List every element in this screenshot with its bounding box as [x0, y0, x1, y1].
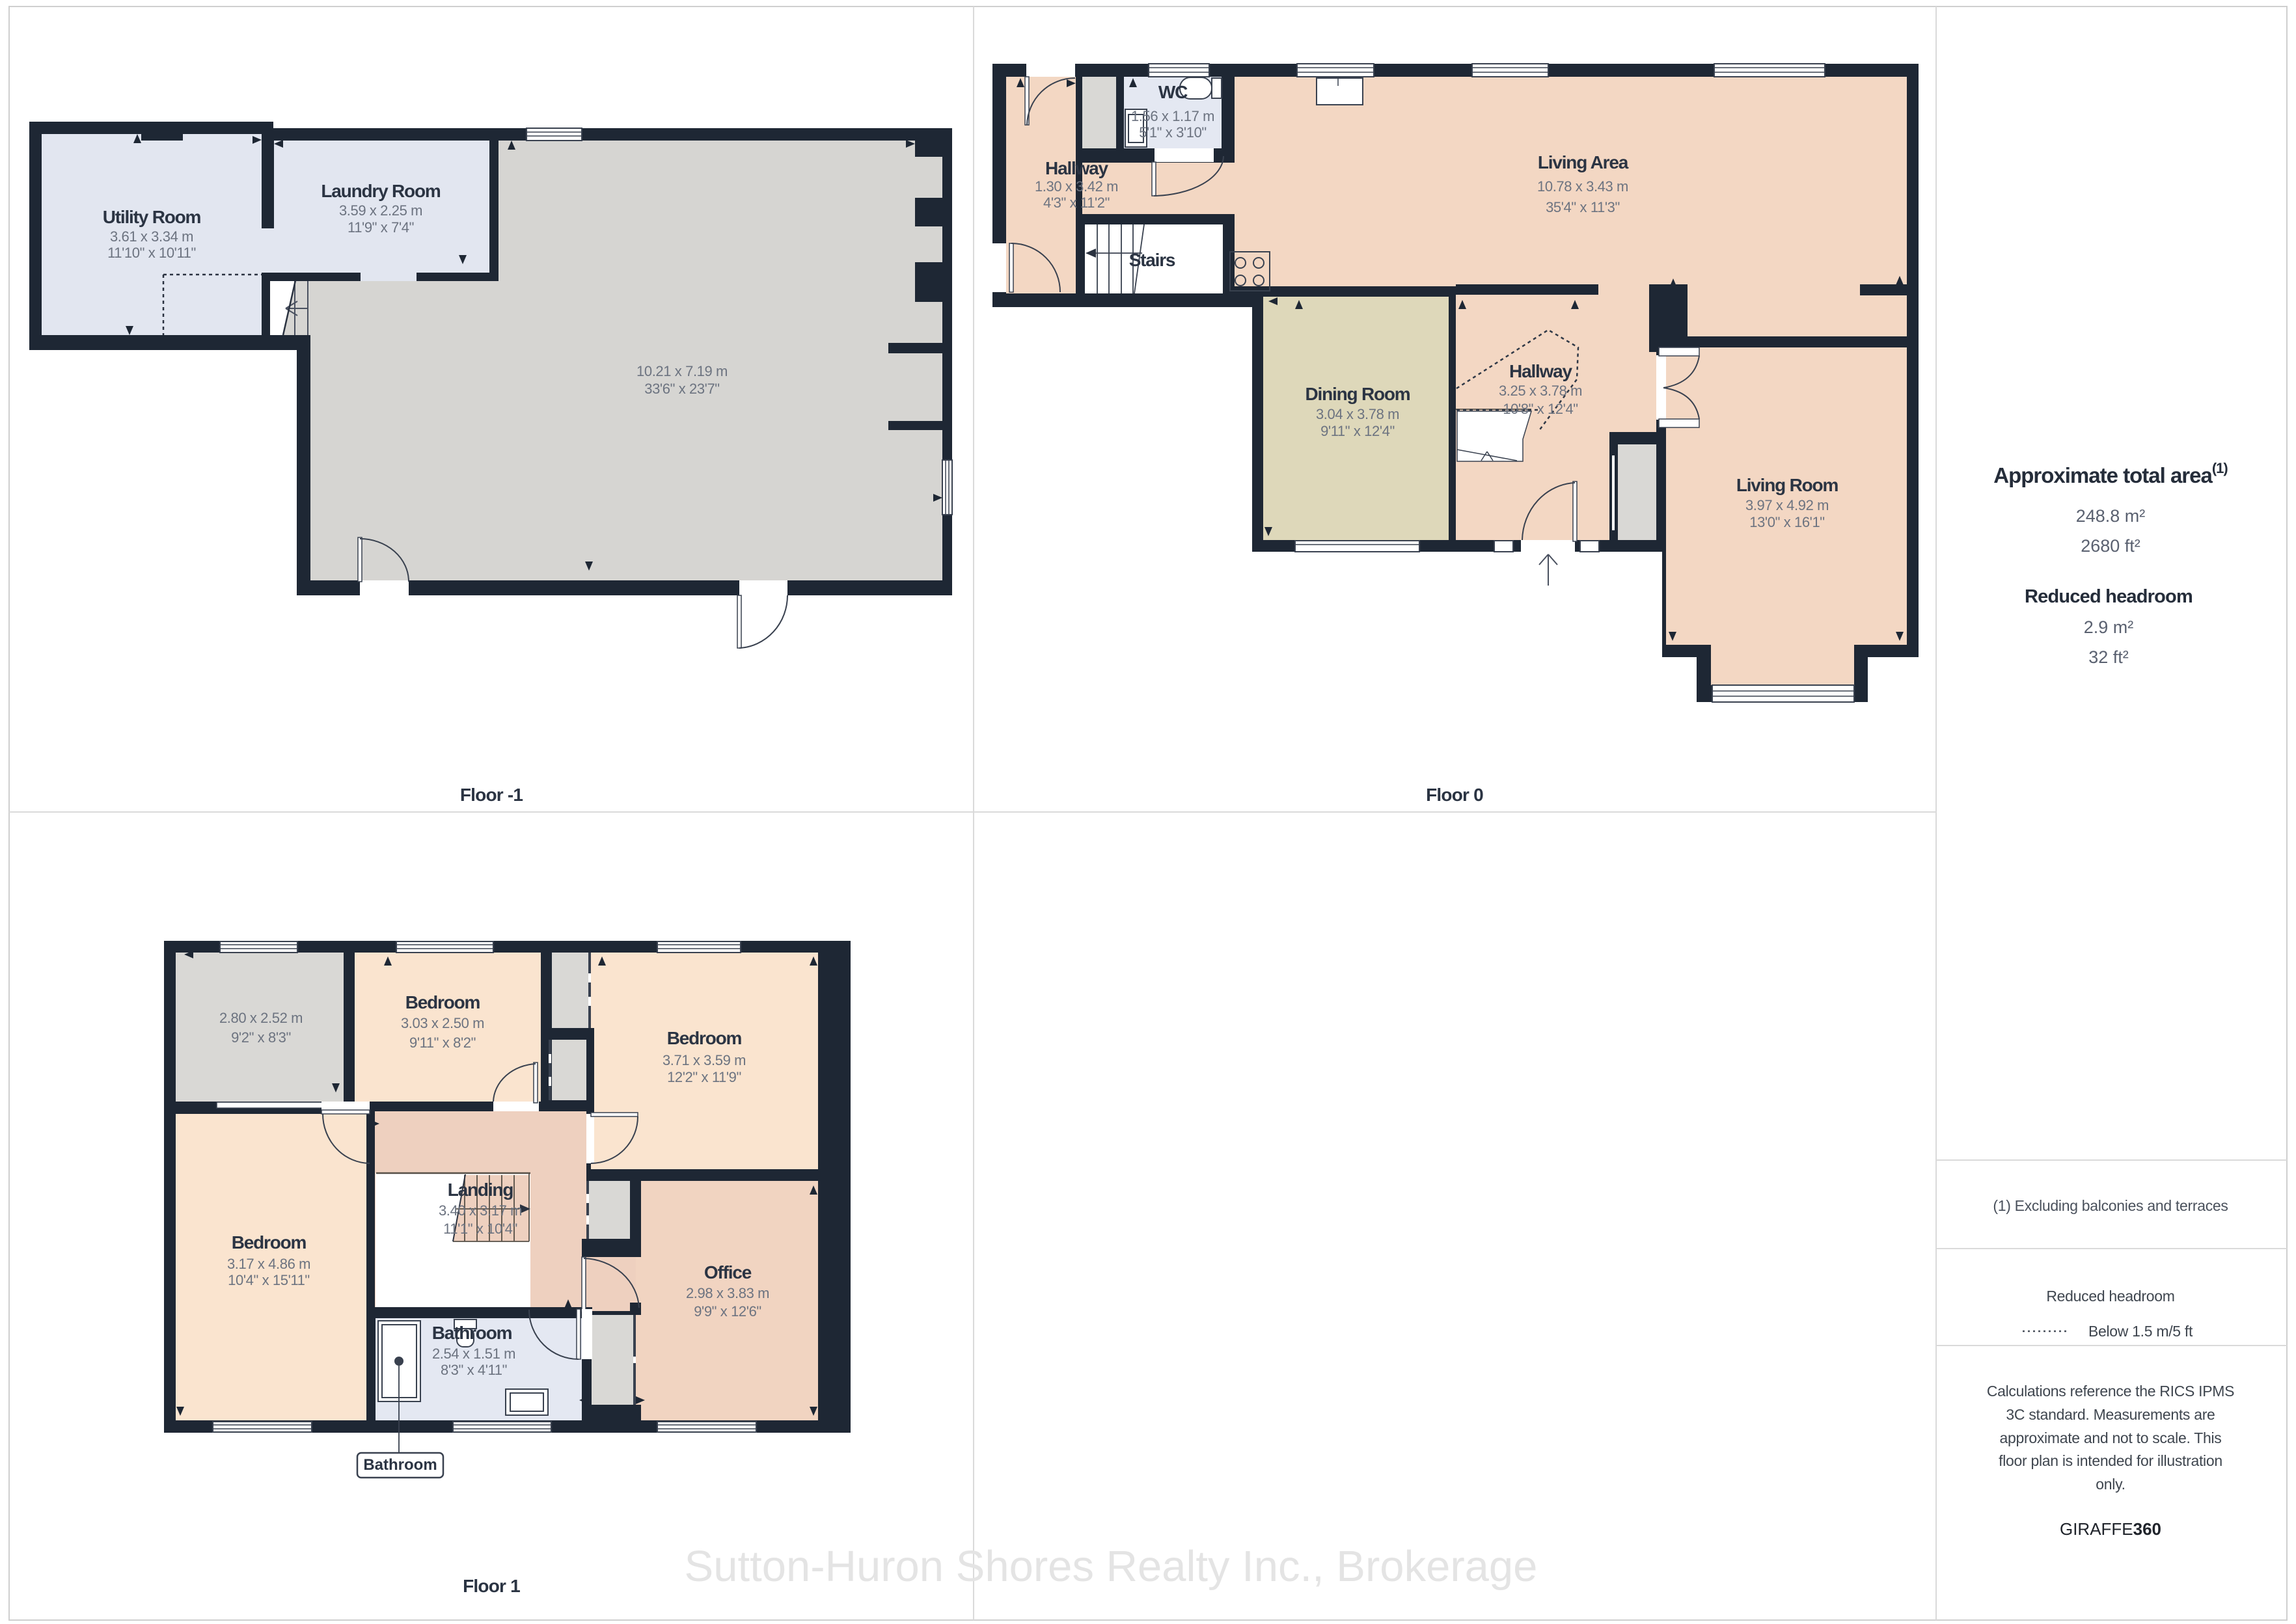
svg-text:4'3" x 11'2": 4'3" x 11'2" — [1043, 195, 1110, 211]
svg-text:3.61 x 3.34 m: 3.61 x 3.34 m — [110, 228, 193, 245]
svg-text:35'4" x 11'3": 35'4" x 11'3" — [1546, 199, 1620, 215]
svg-text:10.78 x 3.43 m: 10.78 x 3.43 m — [1537, 178, 1628, 195]
svg-text:2680 ft²: 2680 ft² — [2081, 536, 2140, 556]
svg-text:3C standard. Measurements are: 3C standard. Measurements are — [2006, 1406, 2215, 1423]
svg-text:Stairs: Stairs — [1129, 250, 1175, 270]
svg-text:5'1" x 3'10": 5'1" x 3'10" — [1139, 124, 1207, 141]
svg-text:Floor 0: Floor 0 — [1426, 785, 1483, 805]
svg-text:9'11" x 12'4": 9'11" x 12'4" — [1320, 423, 1395, 439]
svg-text:Laundry Room: Laundry Room — [321, 181, 440, 201]
svg-text:11'9" x 7'4": 11'9" x 7'4" — [348, 219, 414, 236]
svg-text:Bathroom: Bathroom — [363, 1456, 437, 1474]
svg-text:2.9 m²: 2.9 m² — [2084, 617, 2134, 637]
svg-text:Sutton-Huron Shores Realty Inc: Sutton-Huron Shores Realty Inc., Brokera… — [685, 1542, 1538, 1591]
svg-text:1.30 x 3.42 m: 1.30 x 3.42 m — [1035, 178, 1118, 195]
svg-text:8'3" x 4'11": 8'3" x 4'11" — [441, 1362, 507, 1378]
svg-text:13'0" x 16'1": 13'0" x 16'1" — [1749, 514, 1824, 530]
svg-text:248.8 m²: 248.8 m² — [2076, 506, 2146, 526]
svg-text:Hallway: Hallway — [1045, 158, 1109, 178]
svg-text:Bedroom: Bedroom — [667, 1028, 742, 1048]
svg-text:Utility Room: Utility Room — [103, 207, 201, 227]
svg-text:10'4" x 15'11": 10'4" x 15'11" — [228, 1272, 310, 1288]
svg-text:Bedroom: Bedroom — [232, 1232, 307, 1252]
svg-text:2.98 x 3.83 m: 2.98 x 3.83 m — [686, 1285, 769, 1301]
svg-text:2.80 x 2.52 m: 2.80 x 2.52 m — [219, 1010, 303, 1026]
svg-text:9'2" x 8'3": 9'2" x 8'3" — [231, 1029, 291, 1046]
svg-text:3.71 x 3.59 m: 3.71 x 3.59 m — [663, 1052, 746, 1068]
svg-text:(1) Excluding balconies and te: (1) Excluding balconies and terraces — [1993, 1197, 2228, 1214]
svg-text:10.21 x 7.19 m: 10.21 x 7.19 m — [636, 363, 728, 379]
svg-text:WC: WC — [1158, 82, 1188, 102]
svg-text:32 ft²: 32 ft² — [2088, 647, 2129, 667]
svg-text:3.25 x 3.78 m: 3.25 x 3.78 m — [1499, 383, 1582, 399]
svg-text:Landing: Landing — [448, 1180, 513, 1200]
svg-text:Reduced headroom: Reduced headroom — [2046, 1288, 2174, 1305]
svg-text:approximate and not to scale.: approximate and not to scale. This — [2000, 1429, 2222, 1446]
svg-text:3.59 x 2.25 m: 3.59 x 2.25 m — [339, 202, 422, 219]
svg-text:Approximate total area(1): Approximate total area(1) — [1993, 460, 2228, 487]
svg-text:floor plan is intended for ill: floor plan is intended for illustration — [1999, 1452, 2222, 1469]
svg-text:11'10" x 10'11": 11'10" x 10'11" — [107, 245, 196, 261]
svg-text:Bedroom: Bedroom — [405, 992, 480, 1012]
svg-text:only.: only. — [2096, 1476, 2125, 1493]
svg-text:3.97 x 4.92 m: 3.97 x 4.92 m — [1745, 497, 1829, 513]
svg-text:10'8" x 12'4": 10'8" x 12'4" — [1503, 401, 1578, 417]
svg-text:Reduced headroom: Reduced headroom — [2025, 586, 2193, 607]
svg-text:3.17 x 4.86 m: 3.17 x 4.86 m — [227, 1256, 310, 1272]
svg-text:Calculations reference the RIC: Calculations reference the RICS IPMS — [1987, 1383, 2234, 1400]
svg-text:Office: Office — [704, 1262, 752, 1282]
svg-text:9'9" x 12'6": 9'9" x 12'6" — [694, 1303, 761, 1319]
svg-text:12'2" x 11'9": 12'2" x 11'9" — [667, 1069, 741, 1085]
svg-text:11'1" x 10'4": 11'1" x 10'4" — [443, 1221, 517, 1237]
svg-text:GIRAFFE360: GIRAFFE360 — [2060, 1519, 2161, 1539]
svg-text:Floor 1: Floor 1 — [463, 1576, 520, 1596]
svg-text:3.04 x 3.78 m: 3.04 x 3.78 m — [1316, 406, 1399, 422]
svg-text:3.40 x 3.17 m: 3.40 x 3.17 m — [439, 1202, 522, 1219]
svg-text:2.54 x 1.51 m: 2.54 x 1.51 m — [432, 1346, 515, 1362]
svg-text:Below 1.5 m/5 ft: Below 1.5 m/5 ft — [2088, 1323, 2193, 1340]
svg-text:Hallway: Hallway — [1509, 361, 1573, 381]
svg-text:Bathroom: Bathroom — [432, 1323, 512, 1343]
svg-text:9'11" x 8'2": 9'11" x 8'2" — [409, 1035, 476, 1051]
svg-text:3.03 x 2.50 m: 3.03 x 2.50 m — [401, 1015, 484, 1031]
svg-text:Dining Room: Dining Room — [1305, 384, 1410, 404]
svg-text:Living Area: Living Area — [1538, 152, 1629, 172]
svg-text:Living Room: Living Room — [1736, 475, 1838, 495]
svg-text:1.56 x 1.17 m: 1.56 x 1.17 m — [1131, 108, 1214, 124]
svg-text:Floor -1: Floor -1 — [460, 785, 523, 805]
svg-text:33'6" x 23'7": 33'6" x 23'7" — [644, 381, 719, 397]
